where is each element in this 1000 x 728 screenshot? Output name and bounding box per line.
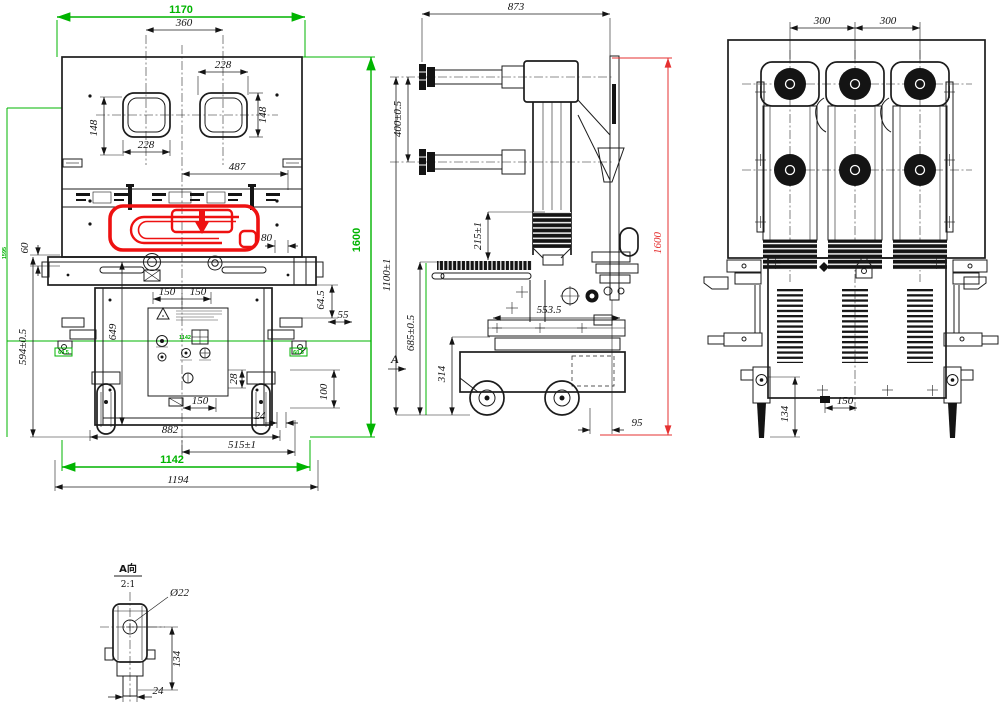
lifting-slot-right — [283, 159, 302, 167]
warning-triangle-icon — [157, 308, 169, 319]
indicator-window — [192, 330, 208, 344]
control-panel — [148, 308, 228, 396]
dim-882: 882 — [162, 424, 179, 436]
dim-148-left: 148 — [88, 119, 100, 136]
dim-28: 28 — [228, 373, 240, 385]
rear-pin-left — [741, 367, 770, 438]
dim-95: 95 — [632, 417, 644, 429]
dim-55: 55 — [338, 309, 350, 321]
dim-1170: 1170 — [169, 4, 193, 16]
dim-134-rear: 134 — [779, 405, 791, 422]
drawing-sheet: 1595 1142 1170 1600 — [0, 0, 1000, 728]
side-bracket-left: 60.5 — [55, 318, 96, 356]
side-chassis — [460, 280, 625, 415]
detail-view-a: A向 2:1 Ø22 134 24 — [100, 562, 189, 702]
dim-300-right: 300 — [879, 15, 897, 27]
dim-24: 24 — [255, 410, 267, 422]
dim-515: 515±1 — [228, 439, 256, 451]
lifting-slot-left — [63, 159, 82, 167]
pole-column-a — [761, 50, 819, 282]
dim-148-right: 148 — [257, 106, 269, 123]
dim-134-detail: 134 — [171, 650, 183, 667]
dim-100: 100 — [318, 383, 330, 400]
dim-150-rear: 150 — [837, 395, 854, 407]
dim-228-top: 228 — [215, 59, 232, 71]
dim-649: 649 — [107, 323, 119, 340]
rear-arm-lower-left — [708, 333, 762, 346]
view-arrow-label: A — [390, 352, 399, 366]
dim-1600-red: 1600 — [652, 232, 664, 255]
louver-group-left — [777, 289, 803, 363]
dim-314: 314 — [436, 365, 448, 383]
green-tag-left: 1595 — [2, 247, 8, 259]
rear-bracket-upper-left — [704, 260, 761, 333]
dim-80: 80 — [261, 232, 273, 244]
rear-arm-lower-right — [944, 333, 998, 346]
dim-1600-front: 1600 — [351, 228, 363, 252]
dim-360: 360 — [175, 17, 193, 29]
pole-column-c — [891, 50, 949, 282]
dim-150-right: 150 — [190, 286, 207, 298]
green-tag-wheel-right: 60.5 — [293, 350, 304, 356]
upper-bushing-arm — [419, 61, 578, 102]
dim-1100: 1100±1 — [381, 259, 393, 292]
dim-60: 60 — [19, 242, 31, 254]
side-bracket-right: 60.5 — [268, 318, 307, 356]
side-view: 873 — [381, 1, 672, 435]
diamond-bolt-icon — [819, 262, 829, 272]
front-chassis-bar — [42, 254, 323, 286]
dim-1194: 1194 — [167, 474, 189, 486]
dim-dia22: Ø22 — [169, 587, 189, 599]
red-arrow-icon — [195, 210, 210, 234]
panel-knobs — [157, 336, 211, 384]
louver-group-center — [842, 289, 868, 363]
dim-150-base: 150 — [192, 395, 209, 407]
dim-24-detail: 24 — [153, 685, 165, 697]
drive-rail — [432, 261, 532, 279]
louver-group-right — [907, 289, 933, 363]
dim-1142: 1142 — [160, 454, 184, 466]
mounting-plate — [592, 56, 638, 325]
dim-487: 487 — [229, 161, 246, 173]
green-tag-wheel-left: 60.5 — [58, 350, 69, 356]
rear-view: 300 300 — [704, 15, 998, 438]
cad-drawing-canvas: 1595 1142 1170 1600 — [0, 0, 1000, 728]
dim-400: 400±0.5 — [392, 100, 404, 137]
dim-228-bottom: 228 — [138, 139, 155, 151]
rear-bracket-upper-right — [953, 260, 987, 333]
dim-594: 594±0.5 — [17, 328, 29, 365]
detail-title: A向 — [119, 562, 137, 575]
handle-hole-right — [200, 93, 247, 137]
dim-873: 873 — [508, 1, 525, 13]
column-bellows — [533, 212, 571, 248]
side-wheels — [470, 381, 579, 415]
dim-215: 215±1 — [472, 222, 484, 250]
detail-scale: 2:1 — [121, 580, 135, 590]
dim-553-5: 553.5 — [537, 304, 562, 316]
dim-685: 685±0.5 — [405, 314, 417, 351]
dim-64-5: 64.5 — [315, 290, 327, 310]
rear-pin-right — [944, 367, 973, 438]
interlock-handle-highlight — [110, 206, 258, 250]
front-view: 1595 1142 1170 1600 — [2, 4, 375, 491]
dim-150-left: 150 — [159, 286, 176, 298]
detail-bracket-body — [105, 604, 155, 696]
dim-300-left: 300 — [813, 15, 831, 27]
green-tag-center: 1142 — [179, 335, 191, 341]
secondary-knob — [208, 256, 222, 270]
